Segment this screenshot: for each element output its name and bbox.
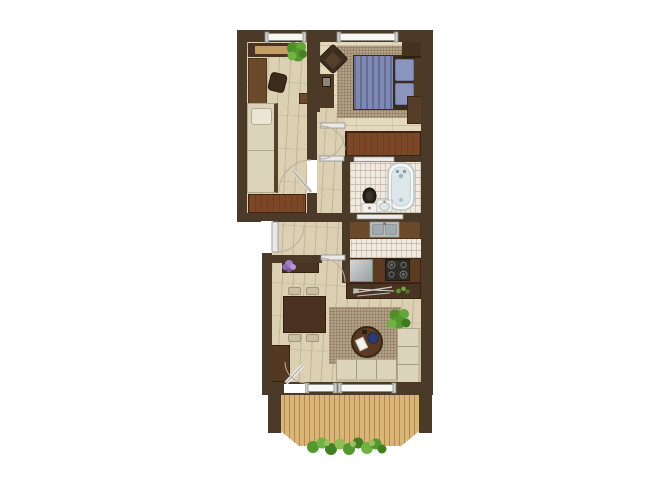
wall-office-bottom	[237, 213, 346, 222]
dining-chair	[306, 334, 319, 342]
office-bed-blanket-seam	[248, 150, 274, 151]
bedroom-wardrobe	[345, 131, 422, 157]
bedroom-armchair-cushion	[325, 52, 342, 69]
floor-plan	[0, 0, 667, 500]
bedroom-picture-frame	[322, 77, 331, 87]
hallway-floor	[272, 222, 345, 258]
office-desk	[248, 58, 267, 104]
office-wardrobe-shelf	[255, 46, 299, 54]
balcony-post-left	[268, 392, 281, 433]
sofa-seat	[336, 359, 398, 383]
wall-left-upper	[237, 30, 247, 222]
bed-pillow-top	[395, 59, 414, 81]
dining-chair	[288, 334, 301, 342]
wall-bottom	[262, 382, 433, 395]
refrigerator	[347, 259, 373, 282]
living-side-cabinet	[271, 345, 290, 382]
bedroom-nightstand	[320, 74, 334, 108]
double-bed-duvet	[354, 56, 393, 109]
kitchen-floor	[346, 239, 421, 258]
wall-office-bedroom	[307, 42, 320, 112]
office-bed-pillow	[251, 108, 272, 125]
wall-top	[237, 30, 432, 42]
wall-right	[421, 30, 433, 395]
wall-office-right	[307, 112, 317, 213]
bedroom-dresser	[407, 96, 422, 124]
sofa-chaise	[397, 328, 422, 383]
wall-living-top	[272, 255, 322, 263]
corridor-floor	[315, 107, 345, 222]
cutlery-console	[346, 283, 421, 299]
bathroom-floor	[350, 162, 421, 213]
office-wardrobe	[248, 43, 301, 57]
wall-kitchen-left	[342, 156, 350, 283]
wall-bath-kitchen	[345, 213, 422, 222]
office-single-bed	[247, 103, 278, 193]
wall-bathroom-top	[345, 156, 422, 162]
dining-chair	[288, 287, 301, 295]
kitchen-sink-counter	[346, 220, 421, 239]
office-low-cabinet	[248, 194, 306, 213]
balcony-post-right	[419, 392, 432, 433]
dining-table	[283, 296, 326, 333]
balcony-deck	[279, 392, 421, 446]
wall-left-lower	[262, 213, 272, 395]
dining-chair	[306, 287, 319, 295]
bedroom-shelf	[402, 42, 422, 58]
cooktop	[385, 259, 410, 281]
